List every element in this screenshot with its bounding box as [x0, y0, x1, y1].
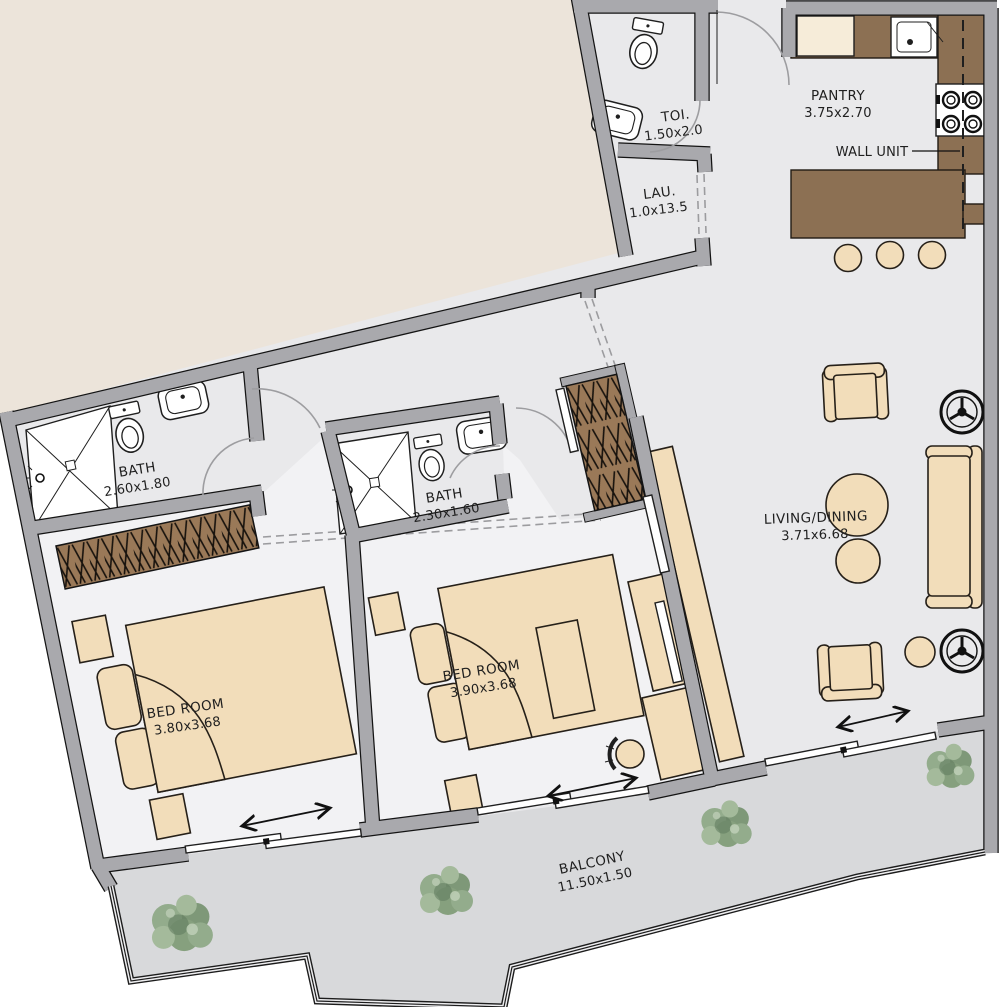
desk-chair-icon — [605, 738, 644, 769]
floor-plan-page: TOI. 1.50x2.0 LAU. 1.0x13.5 PANTRY 3.75x… — [0, 0, 1000, 1007]
living-dims: 3.71x6.68 — [781, 527, 849, 544]
floor-plan-svg: TOI. 1.50x2.0 LAU. 1.0x13.5 PANTRY 3.75x… — [0, 0, 1000, 1007]
sofa — [926, 446, 982, 608]
bar-stools — [835, 242, 946, 272]
kitchen-sink-icon — [891, 17, 943, 57]
nightstand — [368, 592, 405, 635]
plant-pot-icon — [941, 630, 983, 672]
kitchen-island — [791, 170, 965, 238]
nightstand — [72, 615, 113, 663]
armchair — [822, 363, 889, 422]
pantry-label: PANTRY — [811, 88, 865, 104]
nightstand — [149, 794, 190, 840]
side-table — [905, 637, 935, 667]
pantry-dims: 3.75x2.70 — [804, 106, 871, 121]
dining-chair — [836, 539, 880, 583]
wall-unit-label: WALL UNIT — [836, 145, 908, 160]
stove-icon — [936, 84, 986, 136]
armchair — [817, 642, 884, 701]
plant-pot-icon — [941, 391, 983, 433]
fridge-icon — [797, 16, 854, 56]
